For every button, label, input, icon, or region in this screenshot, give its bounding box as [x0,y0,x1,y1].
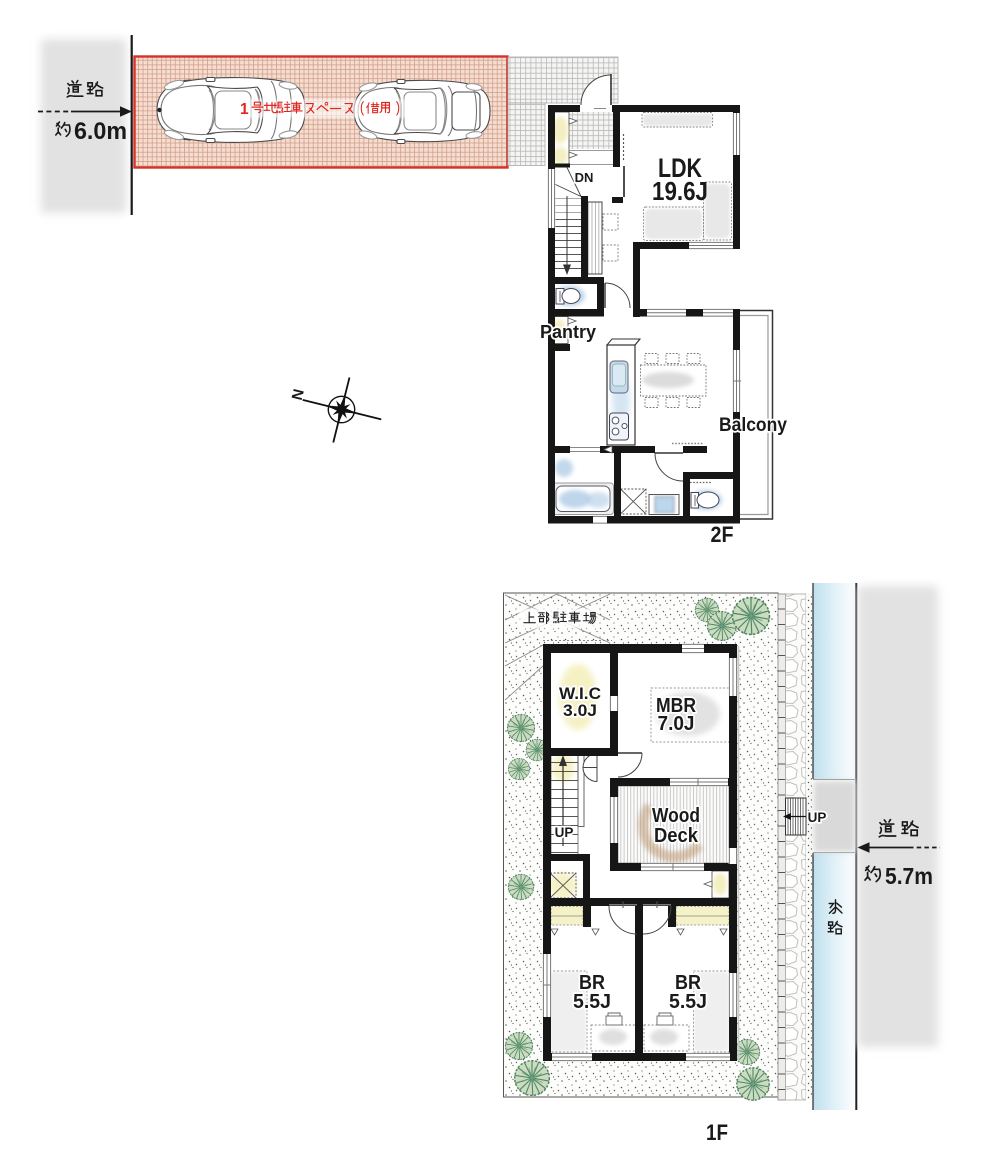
svg-text:DN: DN [575,170,594,185]
svg-text:19.6J: 19.6J [652,176,708,206]
svg-text:UP: UP [808,810,827,825]
svg-text:Deck: Deck [654,825,699,847]
svg-text:1F: 1F [706,1120,728,1145]
svg-text:1: 1 [240,101,249,118]
svg-text:6.0m: 6.0m [74,118,127,145]
svg-text:Pantry: Pantry [540,322,596,342]
svg-text:2F: 2F [711,522,734,547]
svg-text:5.5J: 5.5J [669,991,707,1013]
svg-text:Wood: Wood [652,805,700,827]
svg-text:Balcony: Balcony [719,415,787,436]
svg-text:7.0J: 7.0J [658,713,695,735]
svg-text:3.0J: 3.0J [563,701,597,720]
svg-text:5.5J: 5.5J [573,991,611,1013]
svg-text:UP: UP [555,825,574,840]
svg-text:5.7m: 5.7m [885,863,933,889]
